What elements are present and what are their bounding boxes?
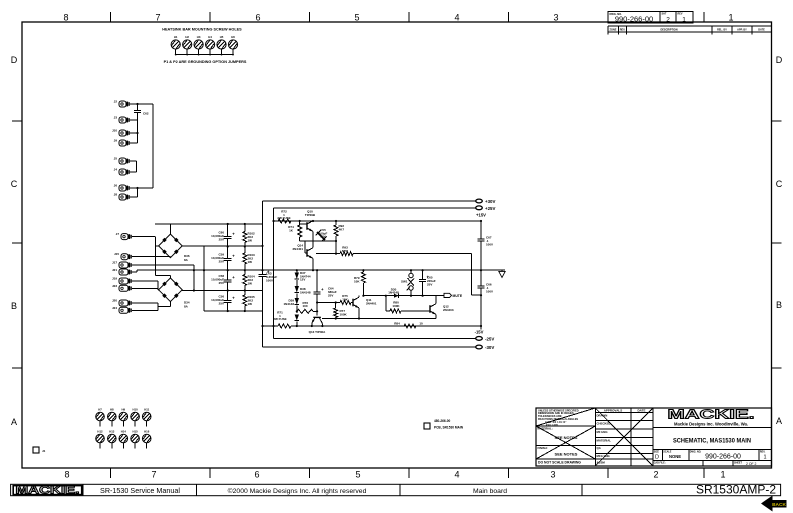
svg-text:PCB, SR1530 MAIN: PCB, SR1530 MAIN <box>434 426 464 430</box>
svg-text:25V: 25V <box>219 281 224 285</box>
svg-text:J17: J17 <box>112 261 117 265</box>
svg-text:C: C <box>11 179 18 189</box>
svg-text:2W FUSE: 2W FUSE <box>273 317 286 321</box>
svg-text:SHT: SHT <box>662 13 667 16</box>
svg-text:H13: H13 <box>109 430 115 434</box>
svg-text:100K: 100K <box>392 304 400 308</box>
svg-text:D: D <box>11 55 18 65</box>
svg-text:H2: H2 <box>185 35 189 39</box>
svg-text:2N4401: 2N4401 <box>292 247 303 251</box>
svg-text:SHEET: SHEET <box>734 461 743 464</box>
svg-text:H10: H10 <box>133 408 139 412</box>
svg-text:7: 7 <box>151 470 156 480</box>
svg-text:MACKIE.: MACKIE. <box>16 485 80 497</box>
svg-text:DO NOT SCALE DRAWING: DO NOT SCALE DRAWING <box>538 461 581 465</box>
svg-text:3: 3 <box>550 470 555 480</box>
svg-text:H9: H9 <box>122 408 126 412</box>
svg-text:J10: J10 <box>112 129 117 133</box>
svg-text:10K: 10K <box>342 297 348 301</box>
svg-text:2: 2 <box>666 17 670 24</box>
svg-text:1: 1 <box>728 13 733 23</box>
svg-text:QA: QA <box>597 446 601 450</box>
svg-text:DATE: DATE <box>758 28 765 31</box>
svg-text:C: C <box>776 179 783 189</box>
svg-text:4K7: 4K7 <box>339 227 345 231</box>
svg-text:DATE: DATE <box>638 409 646 413</box>
svg-text:25V: 25V <box>219 238 224 242</box>
svg-text:J21: J21 <box>112 268 117 272</box>
svg-text:SR-1530 Service Manual: SR-1530 Service Manual <box>100 486 180 495</box>
svg-text:10K: 10K <box>354 279 360 283</box>
svg-text:MATERIAL:: MATERIAL: <box>538 427 553 431</box>
svg-text:A: A <box>11 417 17 427</box>
svg-text:100V: 100V <box>266 278 273 282</box>
svg-text:FINISH:: FINISH: <box>538 446 548 450</box>
svg-text:SIZE: SIZE <box>654 450 660 453</box>
svg-text:H8: H8 <box>110 408 114 412</box>
svg-text:1W: 1W <box>248 302 253 306</box>
svg-text:990-266-00: 990-266-00 <box>615 15 653 24</box>
svg-text:+15V: +15V <box>476 213 486 218</box>
svg-text:SEE NOTES: SEE NOTES <box>555 435 578 440</box>
svg-text:1W: 1W <box>248 281 253 285</box>
svg-text:25V: 25V <box>219 302 224 306</box>
svg-text:480-266-00: 480-266-00 <box>434 419 451 423</box>
svg-text:J19: J19 <box>112 277 117 281</box>
svg-text:1N4148: 1N4148 <box>283 302 294 306</box>
svg-text:8: 8 <box>64 470 69 480</box>
svg-text:2N4401: 2N4401 <box>366 301 377 305</box>
svg-text:J23: J23 <box>112 284 117 288</box>
svg-text:H15: H15 <box>133 430 139 434</box>
svg-text:1: 1 <box>720 470 725 480</box>
svg-text:NONE: NONE <box>669 454 681 459</box>
svg-text:25V: 25V <box>219 260 224 264</box>
svg-text:SR1530AMP-2: SR1530AMP-2 <box>696 482 776 496</box>
svg-text:-30V: -30V <box>485 345 494 350</box>
svg-text:MATERIAL: MATERIAL <box>597 438 612 442</box>
svg-text:25V: 25V <box>328 293 333 297</box>
svg-text:H6: H6 <box>231 35 235 39</box>
svg-text:Q13 TIP30A: Q13 TIP30A <box>309 330 327 334</box>
svg-text:C62: C62 <box>143 112 149 116</box>
svg-text:2N4403: 2N4403 <box>443 308 454 312</box>
svg-text:D: D <box>776 55 783 65</box>
svg-text:J5: J5 <box>114 157 118 161</box>
svg-text:MACKIE.: MACKIE. <box>668 407 755 421</box>
svg-text:H5: H5 <box>220 35 224 39</box>
svg-text:B: B <box>776 300 782 310</box>
svg-text:1W: 1W <box>248 260 253 264</box>
svg-text:J8: J8 <box>114 193 118 197</box>
svg-text:2 OF 2: 2 OF 2 <box>746 462 756 466</box>
svg-text:1W: 1W <box>248 238 253 242</box>
svg-text:J1: J1 <box>42 449 46 453</box>
svg-text:SEE NOTES: SEE NOTES <box>555 452 578 457</box>
svg-text:J24: J24 <box>112 306 117 310</box>
svg-text:10: 10 <box>419 322 423 326</box>
svg-text:CAD FILE:: CAD FILE: <box>654 461 666 464</box>
svg-text:P1 & P2 ARE GROUNDING OPTION J: P1 & P2 ARE GROUNDING OPTION JUMPERS <box>164 60 247 64</box>
svg-text:-15V: -15V <box>475 330 484 335</box>
svg-text:H11: H11 <box>144 408 149 412</box>
svg-text:MUTE: MUTE <box>453 294 463 298</box>
svg-text:J3: J3 <box>114 116 118 120</box>
svg-text:J7: J7 <box>116 232 120 236</box>
svg-text:REL. BY: REL. BY <box>717 28 727 31</box>
svg-text:Main board: Main board <box>473 488 507 495</box>
svg-text:1: 1 <box>763 455 766 461</box>
svg-text:H12: H12 <box>97 430 103 434</box>
svg-text:1N4148: 1N4148 <box>388 291 399 295</box>
svg-text:8: 8 <box>63 13 68 23</box>
svg-text:100V: 100V <box>486 289 493 293</box>
svg-text:100: 100 <box>303 304 308 308</box>
svg-text:2: 2 <box>653 470 658 480</box>
svg-text:APPROVALS: APPROVALS <box>604 409 622 413</box>
svg-text:-25V: -25V <box>485 336 494 341</box>
svg-text:6: 6 <box>254 470 259 480</box>
svg-text:REV.: REV. <box>760 450 766 453</box>
svg-text:50V: 50V <box>320 235 325 239</box>
svg-text:7: 7 <box>155 13 160 23</box>
svg-text:NTC: NTC <box>342 249 349 253</box>
svg-text:J9: J9 <box>114 139 118 143</box>
svg-text:MF ENG: MF ENG <box>597 430 609 434</box>
svg-text:APP. BY: APP. BY <box>737 28 747 31</box>
svg-text:CHECKED: CHECKED <box>597 422 611 426</box>
svg-text:1: 1 <box>682 17 686 24</box>
svg-text:J15: J15 <box>114 252 119 256</box>
svg-text:5: 5 <box>354 13 359 23</box>
svg-text:4: 4 <box>454 13 459 23</box>
svg-text:100V: 100V <box>486 242 493 246</box>
svg-text:H16: H16 <box>144 430 150 434</box>
svg-text:©2000 Mackie Designs Inc. All: ©2000 Mackie Designs Inc. All rights res… <box>228 487 367 495</box>
svg-text:HEATSINK BAR MOUNTING SCREW HO: HEATSINK BAR MOUNTING SCREW HOLES <box>162 28 242 32</box>
svg-text:H3: H3 <box>197 35 201 39</box>
svg-text:J2: J2 <box>114 100 118 104</box>
svg-text:DWG. NO.: DWG. NO. <box>690 450 702 453</box>
svg-text:5: 5 <box>355 470 360 480</box>
svg-text:D: D <box>655 455 659 461</box>
svg-text:4: 4 <box>454 470 459 480</box>
svg-text:990-266-00: 990-266-00 <box>705 454 741 461</box>
svg-text:12V: 12V <box>300 278 305 282</box>
svg-text:H14: H14 <box>121 430 127 434</box>
svg-text:REV.: REV. <box>620 28 626 31</box>
svg-text:ZONE: ZONE <box>610 28 617 31</box>
svg-text:A: A <box>776 416 782 426</box>
svg-text:100K: 100K <box>340 312 348 316</box>
svg-text:DESCRIPTION: DESCRIPTION <box>660 28 677 31</box>
svg-text:+25V: +25V <box>485 206 495 211</box>
svg-text:J20: J20 <box>112 299 117 303</box>
svg-text:6: 6 <box>255 13 260 23</box>
svg-text:SCHEMATIC, MAS1530 MAIN: SCHEMATIC, MAS1530 MAIN <box>673 439 751 445</box>
svg-text:J6: J6 <box>114 184 118 188</box>
svg-text:H4: H4 <box>208 35 212 39</box>
svg-text:Mackie Designs Inc. Woodinv: Mackie Designs Inc. Woodinville, Wa. <box>674 421 748 426</box>
svg-text:SW1: SW1 <box>401 280 408 284</box>
svg-text:H7: H7 <box>98 408 102 412</box>
svg-text:2W FUSE: 2W FUSE <box>277 216 290 220</box>
svg-text:TIP29B: TIP29B <box>305 213 316 217</box>
svg-text:B: B <box>11 301 17 311</box>
svg-text:25V: 25V <box>427 282 432 286</box>
svg-text:R84: R84 <box>394 322 400 326</box>
svg-text:+30V: +30V <box>485 199 495 204</box>
svg-text:BACK: BACK <box>772 502 786 508</box>
svg-text:H1: H1 <box>174 35 178 39</box>
svg-text:REV: REV <box>678 13 683 16</box>
svg-text:3: 3 <box>553 13 558 23</box>
svg-text:J4: J4 <box>114 168 118 172</box>
svg-text:1N4148: 1N4148 <box>300 290 311 294</box>
